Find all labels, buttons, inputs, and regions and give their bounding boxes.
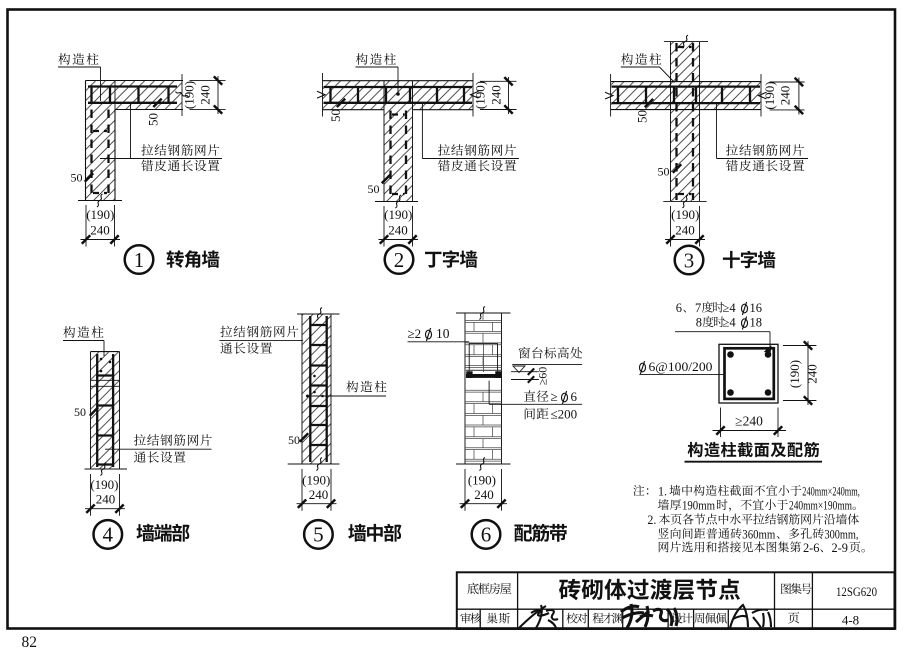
svg-text:7: 7 [695, 301, 701, 315]
svg-text:2-6: 2-6 [803, 541, 820, 555]
svg-text:6: 6 [676, 301, 682, 315]
svg-text:(190): (190) [787, 360, 802, 388]
svg-text:240: 240 [198, 85, 213, 105]
svg-text:190mm: 190mm [682, 499, 715, 513]
svg-text:2.: 2. [647, 513, 656, 527]
svg-text:240: 240 [489, 85, 504, 105]
svg-text:240mm×240mm,: 240mm×240mm, [802, 484, 860, 498]
svg-text:12SG620: 12SG620 [836, 584, 877, 599]
svg-text:360mm: 360mm [742, 527, 775, 541]
svg-text:1: 1 [134, 248, 145, 272]
svg-text:3: 3 [684, 248, 695, 272]
svg-text:2: 2 [394, 248, 405, 272]
svg-text:300mm,: 300mm, [825, 527, 859, 541]
svg-text:50: 50 [146, 113, 161, 126]
svg-text:≥240: ≥240 [735, 414, 763, 429]
svg-text:≥4: ≥4 [723, 301, 737, 315]
svg-text:(190): (190) [671, 207, 699, 222]
svg-text:(190): (190) [302, 473, 330, 488]
svg-text:240: 240 [778, 86, 793, 106]
svg-text:82: 82 [22, 634, 38, 651]
svg-text:50: 50 [71, 171, 83, 185]
svg-text:4-8: 4-8 [842, 613, 859, 628]
svg-text:18: 18 [750, 316, 763, 330]
svg-text:4: 4 [103, 523, 114, 547]
svg-text:240mm×190mm: 240mm×190mm [789, 499, 852, 513]
svg-text:240: 240 [474, 487, 494, 502]
svg-text:≥60: ≥60 [536, 367, 550, 386]
svg-text:(190): (190) [182, 81, 197, 109]
svg-text:6@100/200: 6@100/200 [649, 359, 713, 374]
svg-text:50: 50 [368, 182, 380, 196]
svg-text:240: 240 [805, 364, 820, 384]
svg-text:(190): (190) [762, 81, 777, 109]
svg-text:10: 10 [436, 326, 450, 341]
svg-text:(190): (190) [90, 477, 118, 492]
svg-text:6: 6 [571, 389, 578, 404]
svg-text:≥4: ≥4 [723, 316, 737, 330]
svg-text:50: 50 [328, 109, 343, 122]
svg-text:≥: ≥ [551, 389, 558, 404]
svg-text:2-9: 2-9 [832, 541, 849, 555]
svg-text:(190): (190) [86, 207, 114, 222]
svg-text:≤200: ≤200 [551, 407, 578, 422]
svg-text:240: 240 [96, 492, 116, 507]
svg-text:6: 6 [481, 523, 492, 547]
svg-text:16: 16 [750, 301, 763, 315]
svg-text:50: 50 [74, 405, 86, 419]
svg-text:(190): (190) [384, 207, 412, 222]
svg-text:50: 50 [658, 165, 670, 179]
svg-text:240: 240 [675, 222, 695, 237]
svg-text:(190): (190) [468, 473, 496, 488]
svg-text:≥2: ≥2 [408, 326, 422, 341]
svg-text:50: 50 [634, 110, 649, 123]
svg-text:1.: 1. [658, 484, 667, 498]
svg-text:(190): (190) [473, 81, 488, 109]
svg-text:5: 5 [313, 523, 324, 547]
svg-text:240: 240 [90, 222, 110, 237]
svg-text:8: 8 [696, 316, 702, 330]
svg-text:240: 240 [388, 222, 408, 237]
svg-text:50: 50 [288, 433, 300, 447]
svg-text:240: 240 [309, 487, 329, 502]
